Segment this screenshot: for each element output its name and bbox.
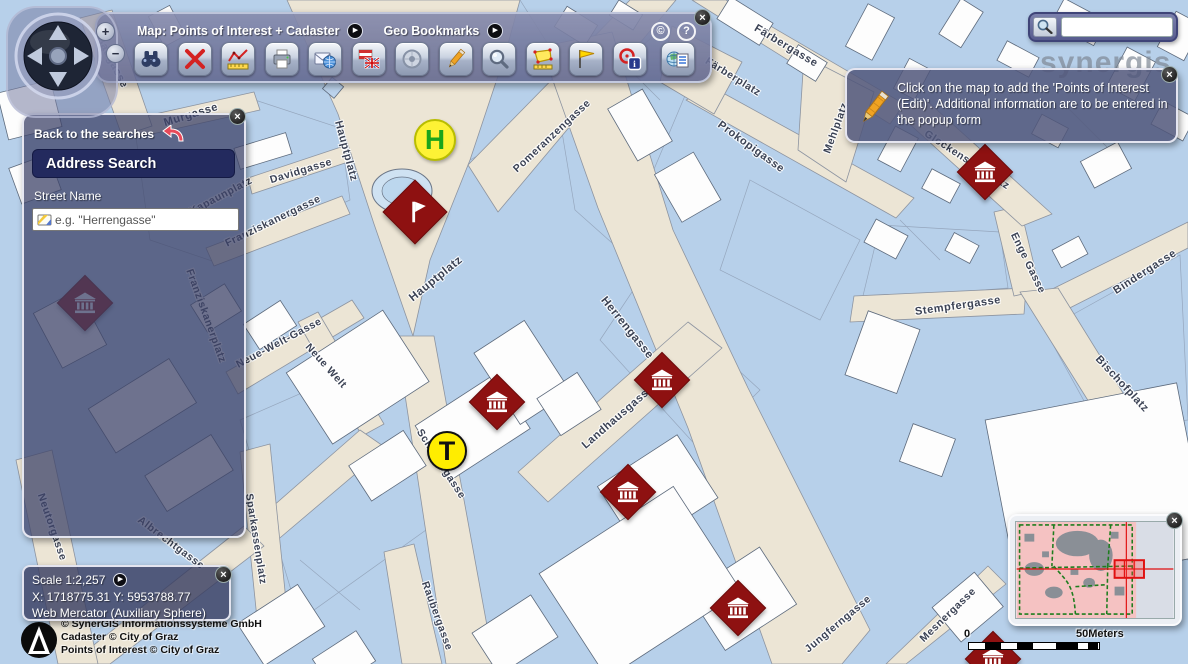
address-search-title: Address Search xyxy=(46,156,156,172)
info-popup-close-button[interactable]: × xyxy=(1161,66,1178,83)
target-info-icon: i xyxy=(618,47,642,71)
overview-close-button[interactable]: × xyxy=(1166,512,1183,529)
red-curved-arrow-icon xyxy=(162,125,186,143)
copyright-line-2: Cadaster © City of Graz xyxy=(61,631,178,643)
globe-list-icon xyxy=(666,47,690,71)
envelope-globe-icon xyxy=(313,47,337,71)
polygon-ruler-icon xyxy=(531,47,555,71)
magnifier-icon xyxy=(487,47,511,71)
scalebar-end-label: 50Meters xyxy=(1076,628,1124,640)
quick-search-box xyxy=(1028,12,1178,42)
pencil-icon xyxy=(857,88,891,128)
send-map-button[interactable] xyxy=(308,42,342,76)
find-tool-button[interactable] xyxy=(134,42,168,76)
scale-label: Scale 1:2,257 xyxy=(32,573,105,587)
pencil-icon xyxy=(444,47,468,71)
copyright-line-3: Points of Interest © City of Graz xyxy=(61,644,219,656)
quick-search-input[interactable] xyxy=(1061,17,1173,37)
language-button[interactable] xyxy=(352,42,386,76)
measure-line-button[interactable] xyxy=(221,42,255,76)
edit-hint-popup: Click on the map to add the 'Points of I… xyxy=(845,68,1178,143)
overview-map[interactable] xyxy=(1015,521,1175,619)
binoculars-icon xyxy=(139,47,163,71)
pan-compass[interactable] xyxy=(12,10,104,107)
scalebar-bar xyxy=(968,642,1100,650)
map-selector-label[interactable]: Map: Points of Interest + Cadaster xyxy=(137,24,339,38)
compass-rose-icon xyxy=(12,10,104,102)
address-tag-icon xyxy=(37,213,52,227)
projection-label: Web Mercator (Auxiliary Sphere) xyxy=(32,606,206,620)
printer-icon xyxy=(270,47,294,71)
legend-button[interactable] xyxy=(661,42,695,76)
austria-uk-flags-icon xyxy=(357,47,381,71)
back-to-searches-label[interactable]: Back to the searches xyxy=(34,127,154,141)
zoom-out-button[interactable]: − xyxy=(106,44,125,63)
street-name-input-wrap xyxy=(32,208,239,231)
clear-selection-button[interactable] xyxy=(178,42,212,76)
magnifier-icon xyxy=(1036,18,1054,34)
edit-hint-message: Click on the map to add the 'Points of I… xyxy=(897,80,1169,128)
scalebar-start-label: 0 xyxy=(964,628,970,640)
geo-bookmark-button[interactable] xyxy=(569,42,603,76)
synergis-logo-icon xyxy=(20,621,58,659)
copyright-button[interactable]: © xyxy=(651,22,670,41)
hotspot-info-button[interactable]: i xyxy=(613,42,647,76)
overview-map-panel[interactable] xyxy=(1008,514,1182,626)
address-search-header: Address Search xyxy=(32,149,235,178)
map-selector-expand-button[interactable]: ▶ xyxy=(347,23,363,39)
quick-search-button[interactable] xyxy=(1033,17,1057,37)
zoom-in-button[interactable]: + xyxy=(96,22,115,41)
street-name-input[interactable] xyxy=(55,210,235,229)
help-button[interactable]: ? xyxy=(677,22,696,41)
street-name-label: Street Name xyxy=(34,189,101,203)
back-to-searches[interactable]: Back to the searches xyxy=(34,125,186,143)
red-x-icon xyxy=(183,47,207,71)
geo-bookmarks-expand-button[interactable]: ▶ xyxy=(487,23,503,39)
svg-text:i: i xyxy=(633,60,636,70)
yellow-flag-icon xyxy=(574,47,598,71)
geo-bookmarks-label[interactable]: Geo Bookmarks xyxy=(383,24,479,38)
center-map-button[interactable] xyxy=(395,42,429,76)
chart-ruler-icon xyxy=(226,47,250,71)
search-panel-close-button[interactable]: × xyxy=(229,108,246,125)
print-button[interactable] xyxy=(265,42,299,76)
scale-expand-button[interactable]: ▶ xyxy=(113,573,127,587)
address-search-panel: Back to the searches Address Search Stre… xyxy=(22,113,246,538)
scale-info-panel: Scale 1:2,257 ▶ X: 1718775.31 Y: 5953788… xyxy=(22,565,231,621)
measure-area-button[interactable] xyxy=(526,42,560,76)
target-icon xyxy=(400,47,424,71)
edit-button[interactable] xyxy=(439,42,473,76)
map-application: BadgasseMurgasseDavidgasseFranziskanerga… xyxy=(0,0,1188,664)
toolbar-close-button[interactable]: × xyxy=(694,9,711,26)
zoom-tool-button[interactable] xyxy=(482,42,516,76)
scale-panel-close-button[interactable]: × xyxy=(215,566,232,583)
coordinates-readout: X: 1718775.31 Y: 5953788.77 xyxy=(32,590,191,604)
main-toolbar: Map: Points of Interest + Cadaster ▶ Geo… xyxy=(95,12,712,83)
